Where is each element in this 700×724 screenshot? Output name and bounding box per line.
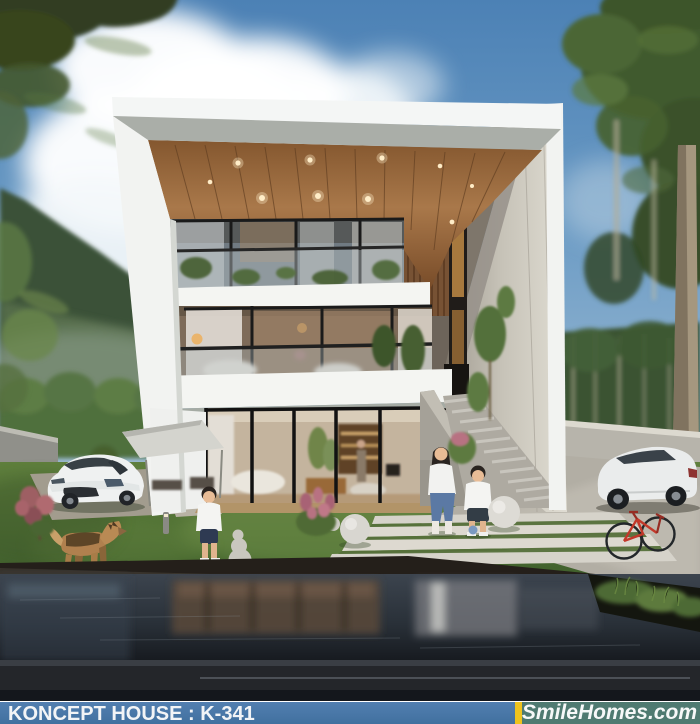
svg-text:KONCEPT HOUSE : K-341: KONCEPT HOUSE : K-341 xyxy=(8,703,255,724)
svg-text:SmileHomes.com: SmileHomes.com xyxy=(522,701,697,724)
